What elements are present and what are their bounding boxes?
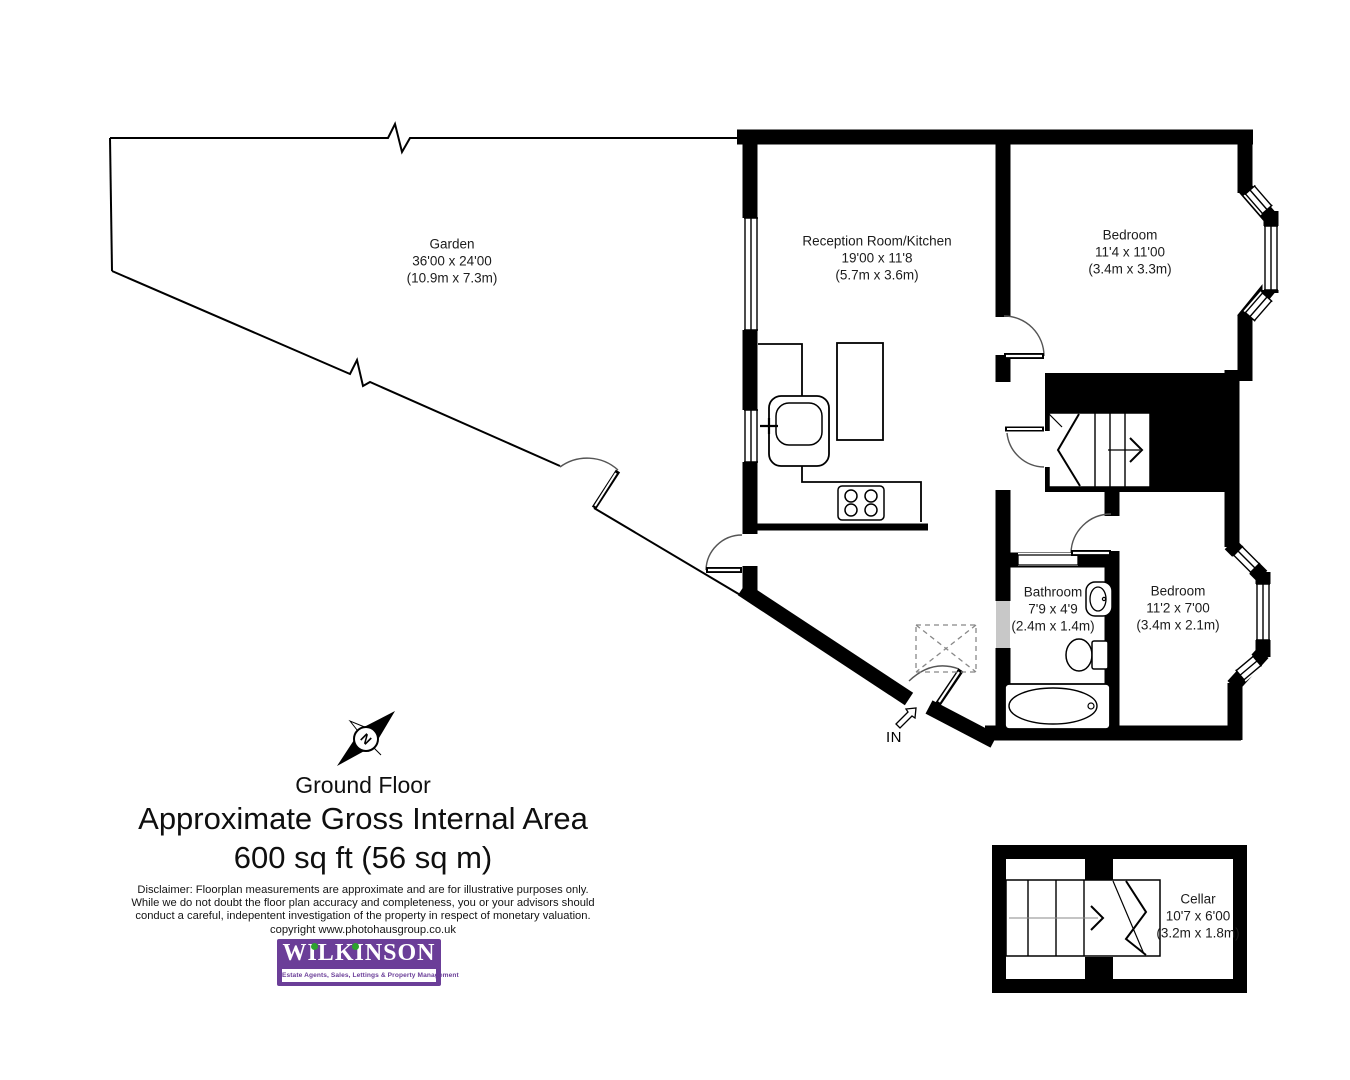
room-label-cellar: Cellar 10'7 x 6'00 (3.2m x 1.8m) <box>1156 891 1239 942</box>
entrance-label: IN <box>886 729 902 746</box>
room-name: Bedroom <box>1136 583 1219 600</box>
garden-boundary <box>110 124 742 596</box>
room-name: Garden <box>407 236 498 253</box>
wilkinson-logo: WILKINSON Estate Agents, Sales, Lettings… <box>277 939 441 986</box>
area-heading: Approximate Gross Internal Area <box>131 800 594 838</box>
room-dims-m: (3.2m x 1.8m) <box>1156 925 1239 942</box>
room-label-reception: Reception Room/Kitchen 19'00 x 11'8 (5.7… <box>802 233 951 284</box>
room-label-bathroom: Bathroom 7'9 x 4'9 (2.4m x 1.4m) <box>1011 584 1094 635</box>
disclaimer-line: conduct a careful, indepentent investiga… <box>131 910 594 923</box>
room-dims-m: (3.4m x 2.1m) <box>1136 617 1219 634</box>
kitchen-hob <box>838 486 884 520</box>
room-dims-ft: 11'4 x 11'00 <box>1088 244 1171 261</box>
toilet <box>1066 639 1092 671</box>
room-label-bedroom1: Bedroom 11'4 x 11'00 (3.4m x 3.3m) <box>1088 227 1171 278</box>
room-dims-m: (3.4m x 3.3m) <box>1088 261 1171 278</box>
room-dims-m: (5.7m x 3.6m) <box>802 267 951 284</box>
disclaimer-text: Disclaimer: Floorplan measurements are a… <box>131 884 594 937</box>
kitchen-island <box>837 343 883 440</box>
staircase-main <box>1042 413 1150 487</box>
area-value: 600 sq ft (56 sq m) <box>131 838 594 877</box>
bathroom-window-gray <box>996 601 1010 648</box>
room-name: Reception Room/Kitchen <box>802 233 951 250</box>
logo-green-dot-icon <box>311 943 318 950</box>
logo-brand-name: WILKINSON <box>277 940 441 967</box>
room-dims-ft: 10'7 x 6'00 <box>1156 908 1239 925</box>
floor-title: Ground Floor <box>131 771 594 800</box>
room-dims-m: (2.4m x 1.4m) <box>1011 618 1094 635</box>
kitchen-fixtures <box>756 343 928 527</box>
compass-icon: N <box>337 711 395 766</box>
floorplan-canvas: N Garden 36'00 x 24'00 (10.9m x 7.3m) Re… <box>0 0 1350 1080</box>
disclaimer-line: Disclaimer: Floorplan measurements are a… <box>131 884 594 897</box>
room-label-bedroom2: Bedroom 11'2 x 7'00 (3.4m x 2.1m) <box>1136 583 1219 634</box>
room-label-garden: Garden 36'00 x 24'00 (10.9m x 7.3m) <box>407 236 498 287</box>
copyright-line: copyright www.photohausgroup.co.uk <box>131 924 594 937</box>
entrance-arrow-icon <box>896 708 916 728</box>
room-dims-ft: 19'00 x 11'8 <box>802 250 951 267</box>
garden-gate <box>560 458 618 508</box>
room-name: Bathroom <box>1011 584 1094 601</box>
bathroom-niche <box>1018 553 1078 566</box>
title-block: Ground Floor Approximate Gross Internal … <box>131 771 594 937</box>
porch <box>916 625 976 672</box>
staircase-cellar <box>1006 880 1160 956</box>
room-dims-m: (10.9m x 7.3m) <box>407 270 498 287</box>
room-name: Bedroom <box>1088 227 1171 244</box>
logo-green-dot-icon <box>352 943 359 950</box>
room-dims-ft: 7'9 x 4'9 <box>1011 601 1094 618</box>
room-dims-ft: 36'00 x 24'00 <box>407 253 498 270</box>
logo-tagline: Estate Agents, Sales, Lettings & Propert… <box>282 969 436 982</box>
room-dims-ft: 11'2 x 7'00 <box>1136 600 1219 617</box>
room-name: Cellar <box>1156 891 1239 908</box>
disclaimer-line: While we do not doubt the floor plan acc… <box>131 897 594 910</box>
